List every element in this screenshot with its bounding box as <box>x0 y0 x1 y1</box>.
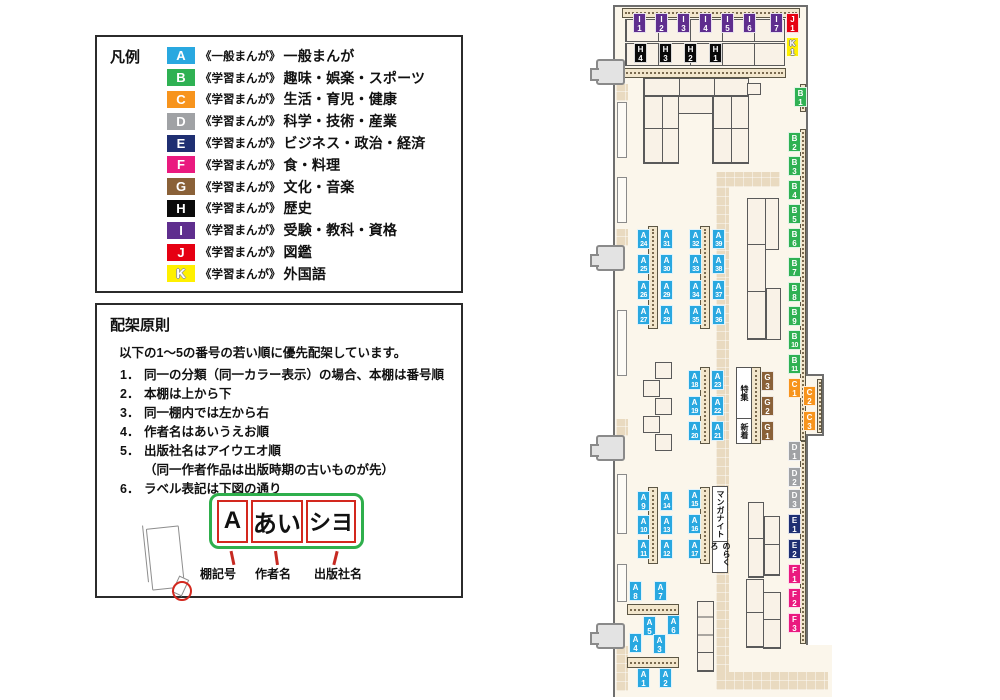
shelf-label-A15: A15 <box>688 489 701 509</box>
category-chip-F: F <box>167 156 195 173</box>
table-block <box>746 579 764 648</box>
shelf-label-B4: B4 <box>788 180 801 200</box>
shelf-label-I4: I4 <box>699 13 712 33</box>
shelf-label-J1: J1 <box>786 13 799 33</box>
label-example-diagram: Aあいシヨ 棚記号作者名出版社名 <box>97 485 465 595</box>
wall-shelf <box>617 177 627 223</box>
shelf-label-E2: E2 <box>788 539 801 559</box>
callout-label: 作者名 <box>255 565 291 582</box>
legend-series: 《学習まんが》 <box>200 200 281 216</box>
table-block <box>763 592 781 649</box>
shelf-label-I3: I3 <box>677 13 690 33</box>
shelf-label-B7: B7 <box>788 257 801 277</box>
shelf-label-I5: I5 <box>721 13 734 33</box>
shelf-label-I2: I2 <box>655 13 668 33</box>
shelf-label-A8: A8 <box>629 581 642 601</box>
shelf-column <box>697 601 714 672</box>
shelf-label-A36: A36 <box>712 305 725 325</box>
shelf-label-B9: B9 <box>788 306 801 326</box>
legend-series: 《学習まんが》 <box>200 244 281 260</box>
legend-box: 凡例 A《一般まんが》一般まんがB《学習まんが》趣味・娯楽・スポーツC《学習まん… <box>95 35 463 293</box>
door <box>596 245 625 271</box>
legend-row-K: K《学習まんが》外国語 <box>167 263 426 285</box>
wall-shelf <box>617 310 627 376</box>
table-block <box>643 78 749 96</box>
highlight-circle <box>172 581 192 601</box>
category-chip-K: K <box>167 265 195 282</box>
legend-rows: A《一般まんが》一般まんがB《学習まんが》趣味・娯楽・スポーツC《学習まんが》生… <box>167 45 426 285</box>
category-chip-C: C <box>167 91 195 108</box>
shelf-label-A16: A16 <box>688 514 701 534</box>
principle-item-5: 5．出版社名はアイウエオ順 <box>120 442 444 461</box>
legend-series: 《学習まんが》 <box>200 113 281 129</box>
seat <box>655 434 672 451</box>
shelf-label-I1: I1 <box>633 13 646 33</box>
walkway-bottom <box>716 672 828 690</box>
legend-series: 《学習まんが》 <box>200 135 281 151</box>
principle-number: 3． <box>120 404 144 423</box>
legend-label: 生活・育児・健康 <box>284 89 398 109</box>
shelf-label-E1: E1 <box>788 514 801 534</box>
shelf-label-A9: A9 <box>637 491 650 511</box>
door <box>596 59 625 85</box>
legend-label: 一般まんが <box>284 46 355 66</box>
shelf-label-A17: A17 <box>688 539 701 559</box>
legend-label: ビジネス・政治・経済 <box>284 133 426 153</box>
shelf-label-A14: A14 <box>660 491 673 511</box>
shelf-label-D1: D1 <box>788 441 801 461</box>
legend-row-J: J《学習まんが》図鑑 <box>167 241 426 263</box>
wall-shelf <box>617 102 627 158</box>
shelf-label-B3: B3 <box>788 156 801 176</box>
bookshelf-strip <box>700 367 710 444</box>
shelf-label-A22: A22 <box>711 396 724 416</box>
shelf-label-H2: H2 <box>684 43 697 63</box>
shelf-label-G3: G3 <box>761 371 774 391</box>
legend-series: 《学習まんが》 <box>200 266 281 282</box>
legend-row-B: B《学習まんが》趣味・娯楽・スポーツ <box>167 67 426 89</box>
shelf-label-A19: A19 <box>688 396 701 416</box>
shelf-band <box>625 43 785 66</box>
door <box>596 435 625 461</box>
label-example-frame: Aあいシヨ <box>209 493 364 549</box>
shelf-label-A25: A25 <box>637 254 650 274</box>
legend-label: 趣味・娯楽・スポーツ <box>284 68 426 88</box>
book-icon <box>139 525 199 600</box>
shelf-label-A7: A7 <box>654 581 667 601</box>
shelf-label-A18: A18 <box>688 370 701 390</box>
shelf-label-G1: G1 <box>761 421 774 441</box>
category-chip-G: G <box>167 178 195 195</box>
legend-row-C: C《学習まんが》生活・育児・健康 <box>167 89 426 111</box>
shelf-label-A33: A33 <box>689 254 702 274</box>
legend-row-A: A《一般まんが》一般まんが <box>167 45 426 67</box>
callout-label: 出版社名 <box>314 565 362 582</box>
legend-series: 《学習まんが》 <box>200 157 281 173</box>
legend-row-G: G《学習まんが》文化・音楽 <box>167 176 426 198</box>
principle-item-1: 1．同一の分類（同一カラー表示）の場合、本棚は番号順 <box>120 366 444 385</box>
legend-row-I: I《学習まんが》受験・教科・資格 <box>167 219 426 241</box>
principle-item-4: 4．作者名はあいうえお順 <box>120 423 444 442</box>
principles-title: 配架原則 <box>110 314 170 335</box>
table-block <box>643 96 679 164</box>
shelf-label-A24: A24 <box>637 229 650 249</box>
shelf-label-A39: A39 <box>712 229 725 249</box>
bookshelf-strip <box>627 604 679 615</box>
shelf-label-H1: H1 <box>709 43 722 63</box>
table-block <box>747 83 761 95</box>
principle-text: 本棚は上から下 <box>144 385 232 404</box>
shelf-label-A10: A10 <box>637 515 650 535</box>
principle-text: 出版社名はアイウエオ順 <box>144 442 281 461</box>
legend-label: 食・料理 <box>284 155 341 175</box>
legend-label: 文化・音楽 <box>284 177 355 197</box>
legend-row-E: E《学習まんが》ビジネス・政治・経済 <box>167 132 426 154</box>
principles-list: 1．同一の分類（同一カラー表示）の場合、本棚は番号順2．本棚は上から下3．同一棚… <box>120 366 444 499</box>
table-block <box>748 502 764 578</box>
category-chip-H: H <box>167 200 195 217</box>
legend-series: 《学習まんが》 <box>200 70 281 86</box>
seat <box>655 362 672 379</box>
principle-text: 同一棚内では左から右 <box>144 404 269 423</box>
principle-item-2: 2．本棚は上から下 <box>120 385 444 404</box>
principle-number: 2． <box>120 385 144 404</box>
legend-title: 凡例 <box>110 46 140 67</box>
shelf-label-B11: B11 <box>788 354 801 374</box>
table-block <box>765 198 779 250</box>
shelf-label-A38: A38 <box>712 254 725 274</box>
shelf-label-A28: A28 <box>660 305 673 325</box>
seat <box>655 398 672 415</box>
door-mat <box>616 646 628 691</box>
area-norakuro: のらくろ <box>712 541 728 573</box>
shelf-label-A2: A2 <box>659 668 672 688</box>
principle-number: 1． <box>120 366 144 385</box>
table-block <box>678 96 714 114</box>
principle-subtext: （同一作者作品は出版時期の古いものが先） <box>144 461 444 480</box>
door-mat <box>616 229 628 246</box>
shelf-label-D3: D3 <box>788 489 801 509</box>
shelf-label-B5: B5 <box>788 204 801 224</box>
shelf-label-A13: A13 <box>660 515 673 535</box>
principle-item-3: 3．同一棚内では左から右 <box>120 404 444 423</box>
table-block <box>766 288 781 340</box>
shelf-label-A5: A5 <box>643 616 656 636</box>
shelf-label-A29: A29 <box>660 280 673 300</box>
legend-series: 《学習まんが》 <box>200 222 281 238</box>
shelf-label-A35: A35 <box>689 305 702 325</box>
shelf-label-B10: B10 <box>788 330 801 350</box>
callout-line <box>274 551 278 565</box>
label-example-cell-2: あい <box>251 500 303 543</box>
legend-row-F: F《学習まんが》食・料理 <box>167 154 426 176</box>
shelf-label-C2: C2 <box>803 386 816 406</box>
legend-row-H: H《学習まんが》歴史 <box>167 198 426 220</box>
table-block <box>764 516 780 576</box>
seat <box>643 380 660 397</box>
shelf-label-C3: C3 <box>803 411 816 431</box>
shelf-label-F1: F1 <box>788 564 801 584</box>
shelf-label-A12: A12 <box>660 539 673 559</box>
bookshelf-strip <box>627 657 679 668</box>
shelf-label-A6: A6 <box>667 615 680 635</box>
shelf-label-B1: B1 <box>794 87 807 107</box>
area-manga-night: マンガナイト <box>712 486 728 542</box>
shelf-label-B8: B8 <box>788 282 801 302</box>
shelf-label-I7: I7 <box>770 13 783 33</box>
legend-series: 《一般まんが》 <box>200 48 281 64</box>
bookshelf-strip <box>620 68 786 78</box>
shelf-label-F3: F3 <box>788 613 801 633</box>
shelf-label-B6: B6 <box>788 228 801 248</box>
table-block <box>712 96 749 164</box>
shelf-label-A23: A23 <box>711 370 724 390</box>
shelf-label-A20: A20 <box>688 421 701 441</box>
category-chip-J: J <box>167 244 195 261</box>
shelf-label-A34: A34 <box>689 280 702 300</box>
shelf-label-K1: K1 <box>786 37 799 57</box>
walkway-top <box>716 172 780 187</box>
principles-intro: 以下の1～5の番号の若い順に優先配架しています。 <box>119 342 406 361</box>
shelf-label-A31: A31 <box>660 229 673 249</box>
shelf-label-H3: H3 <box>659 43 672 63</box>
callout-line <box>332 551 338 565</box>
legend-row-D: D《学習まんが》科学・技術・産業 <box>167 110 426 132</box>
bookshelf-strip <box>751 367 761 444</box>
shelf-label-A11: A11 <box>637 539 650 559</box>
area-shinchaku: 新着 <box>736 418 752 444</box>
wall-shelf <box>617 474 627 534</box>
shelf-label-A1: A1 <box>637 668 650 688</box>
area-tokushu: 特集 <box>736 367 752 419</box>
shelf-label-D2: D2 <box>788 467 801 487</box>
legend-label: 図鑑 <box>284 242 312 262</box>
category-chip-D: D <box>167 113 195 130</box>
shelf-label-A27: A27 <box>637 305 650 325</box>
shelf-label-G2: G2 <box>761 396 774 416</box>
legend-label: 受験・教科・資格 <box>284 220 398 240</box>
principle-text: 作者名はあいうえお順 <box>144 423 269 442</box>
principle-text: 同一の分類（同一カラー表示）の場合、本棚は番号順 <box>144 366 444 385</box>
shelf-label-A3: A3 <box>653 634 666 654</box>
shelf-label-A32: A32 <box>689 229 702 249</box>
label-example-cell-3: シヨ <box>306 500 356 543</box>
shelf-label-A37: A37 <box>712 280 725 300</box>
shelf-label-C1: C1 <box>788 378 801 398</box>
wall-shelf <box>617 564 627 602</box>
shelf-label-A26: A26 <box>637 280 650 300</box>
category-chip-I: I <box>167 222 195 239</box>
shelf-label-A21: A21 <box>711 421 724 441</box>
bookshelf-strip <box>817 379 822 433</box>
legend-label: 歴史 <box>284 198 312 218</box>
callout-label: 棚記号 <box>200 565 236 582</box>
seat <box>643 416 660 433</box>
category-chip-B: B <box>167 69 195 86</box>
door-mat <box>616 419 628 436</box>
principle-number: 5． <box>120 442 144 461</box>
principle-number: 4． <box>120 423 144 442</box>
legend-series: 《学習まんが》 <box>200 179 281 195</box>
legend-label: 科学・技術・産業 <box>284 111 398 131</box>
table-block <box>747 198 766 340</box>
callout-line <box>230 551 235 565</box>
principles-box: 配架原則 以下の1～5の番号の若い順に優先配架しています。 1．同一の分類（同一… <box>95 303 463 598</box>
legend-series: 《学習まんが》 <box>200 91 281 107</box>
shelf-label-F2: F2 <box>788 588 801 608</box>
shelf-label-A30: A30 <box>660 254 673 274</box>
shelf-label-I6: I6 <box>743 13 756 33</box>
legend-label: 外国語 <box>284 264 327 284</box>
category-chip-A: A <box>167 47 195 64</box>
shelf-label-H4: H4 <box>634 43 647 63</box>
shelf-label-B2: B2 <box>788 132 801 152</box>
label-example-cell-1: A <box>217 500 248 543</box>
door <box>596 623 625 649</box>
category-chip-E: E <box>167 135 195 152</box>
shelf-label-A4: A4 <box>629 633 642 653</box>
door-mat <box>616 84 628 101</box>
